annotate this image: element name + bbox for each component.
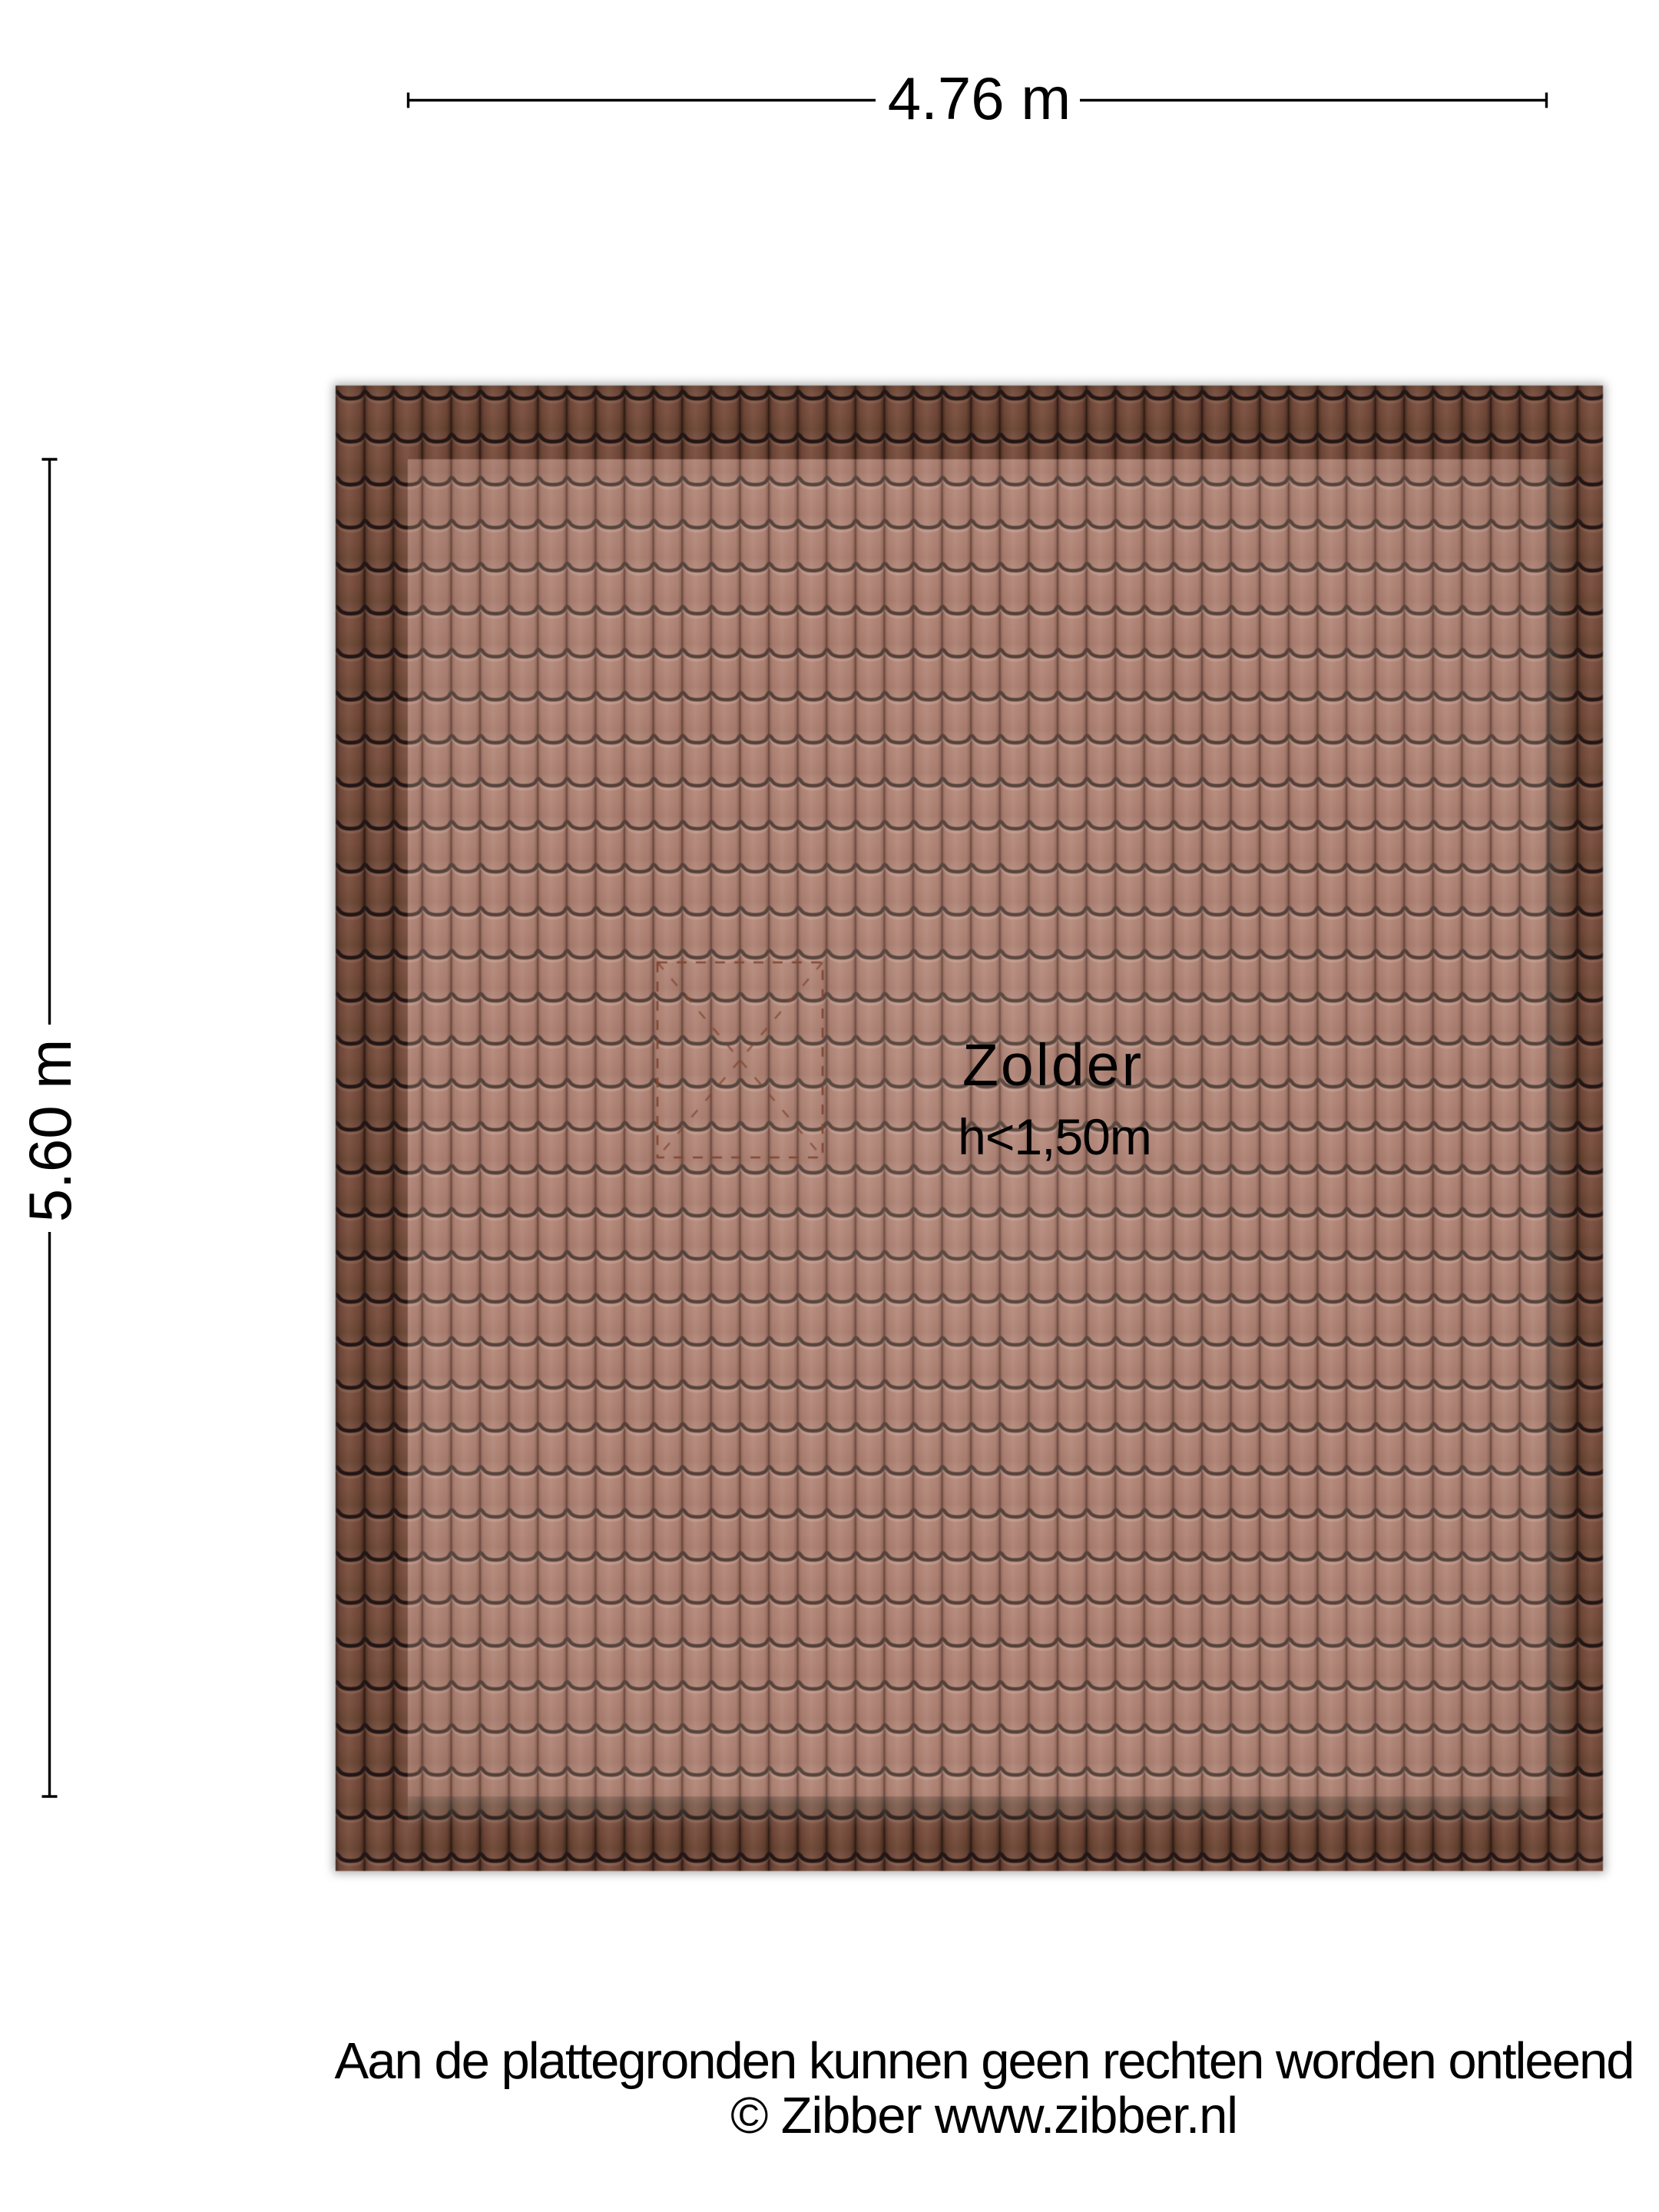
svg-text:Aan de plattegronden kunnen ge: Aan de plattegronden kunnen geen rechten… bbox=[335, 2032, 1634, 2090]
svg-text:5.60 m: 5.60 m bbox=[16, 1039, 84, 1222]
svg-text:© Zibber www.zibber.nl: © Zibber www.zibber.nl bbox=[730, 2087, 1237, 2144]
svg-text:Zolder: Zolder bbox=[962, 1032, 1144, 1098]
svg-text:h<1,50m: h<1,50m bbox=[958, 1108, 1151, 1165]
svg-text:4.76 m: 4.76 m bbox=[888, 65, 1071, 132]
